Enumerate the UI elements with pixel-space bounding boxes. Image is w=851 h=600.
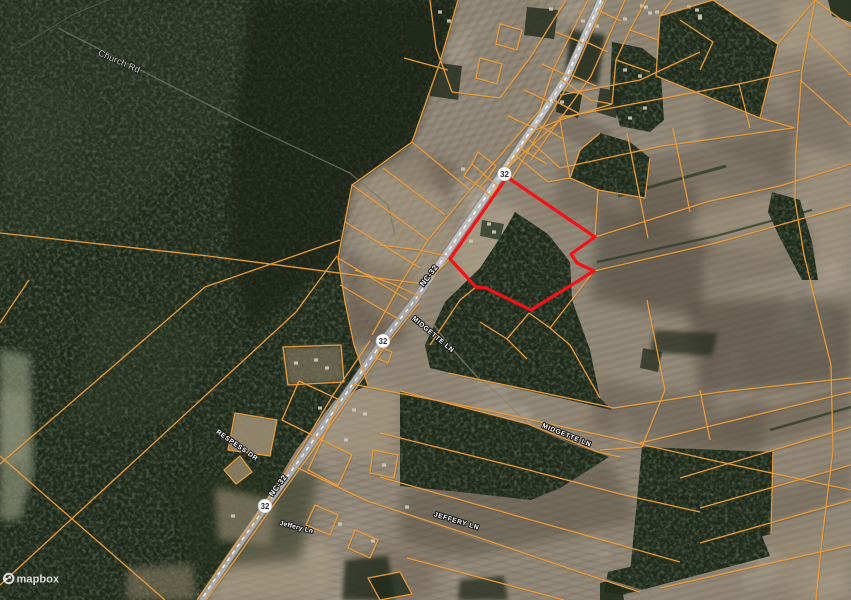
svg-text:mapbox: mapbox bbox=[17, 574, 61, 586]
svg-text:32: 32 bbox=[500, 170, 509, 179]
svg-text:32: 32 bbox=[379, 337, 388, 346]
svg-text:32: 32 bbox=[261, 502, 270, 511]
